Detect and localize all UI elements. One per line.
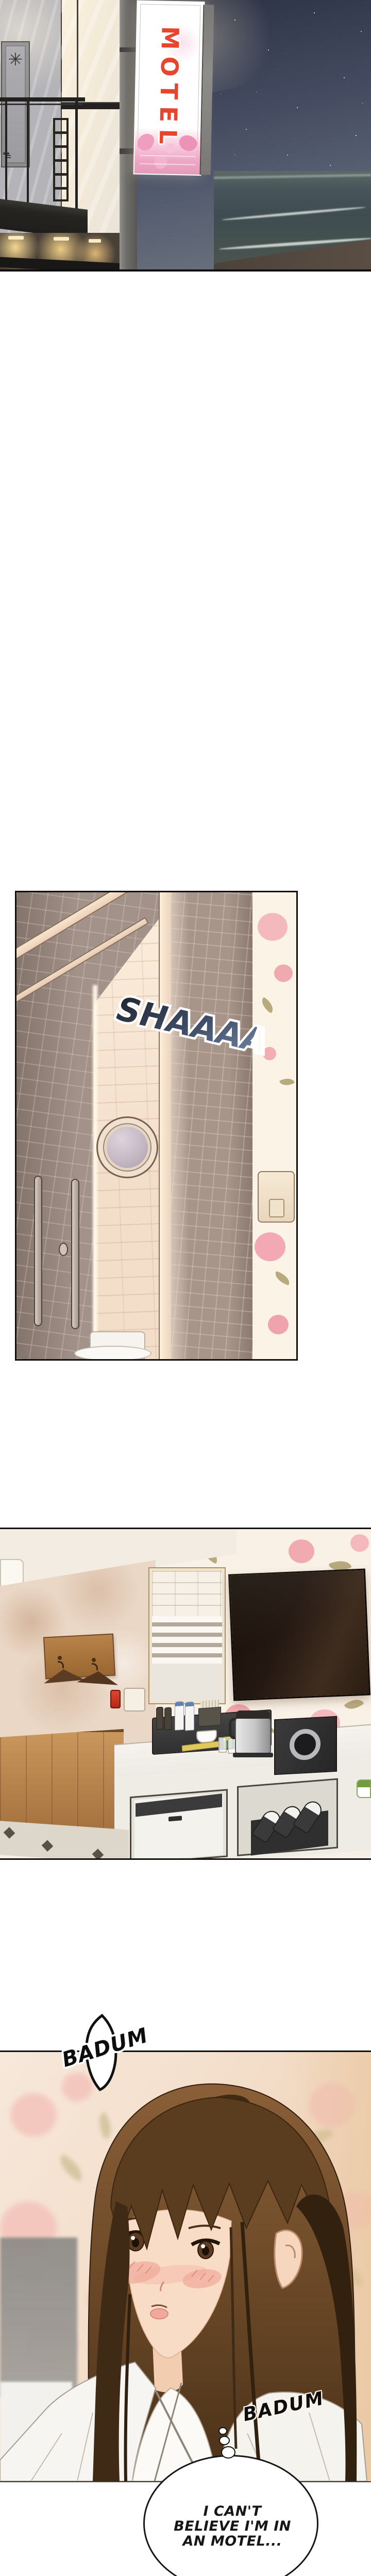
panel-motel-room	[0, 1528, 371, 1860]
speaker-box	[274, 1716, 337, 1775]
pillar-joint	[120, 47, 137, 52]
dark-bottle	[164, 1707, 172, 1730]
thought-line: I CAN'T	[145, 2504, 320, 2519]
wall-switch-plate	[258, 1171, 295, 1223]
toilet-seat	[74, 1346, 151, 1361]
door-frame-stile	[159, 892, 172, 1359]
girl-illustration	[0, 2052, 371, 2481]
thought-trail-circle	[221, 2446, 235, 2459]
wallpaper-peach	[274, 964, 293, 982]
drinking-glass	[218, 1737, 227, 1753]
floral-wallpaper-strip	[252, 892, 296, 1359]
railing-ladder-frame	[53, 118, 69, 201]
door-edge-glow	[93, 985, 97, 1359]
fridge-niche	[130, 1789, 228, 1860]
webtoon-page: ✳ MOTEL	[0, 0, 371, 2576]
thought-bubble-text: I CAN'T BELIEVE I'M IN AN MOTEL...	[145, 2504, 320, 2549]
utensil-box	[198, 1707, 221, 1727]
floor-diamond	[92, 1849, 104, 1860]
wallpaper-peach	[350, 1534, 369, 1552]
emergency-light-switch	[110, 1690, 121, 1708]
robe-left-shoulder	[0, 2362, 156, 2481]
mirror-lower-glass	[152, 1664, 222, 1701]
wall-sticker-header	[358, 1781, 371, 1787]
switch-slot	[269, 1199, 284, 1217]
door-handle-bar	[71, 1179, 79, 1329]
panel-shower-room: SHAAAA SHAAAA	[15, 891, 298, 1361]
window-mullion	[77, 0, 78, 102]
tv-screen-gloss	[228, 1569, 370, 1701]
thought-trail-circle	[219, 2436, 230, 2445]
wallpaper-peach	[268, 1315, 289, 1334]
water-bottle	[185, 1701, 194, 1731]
kettle-lid	[236, 1710, 270, 1719]
wallpaper-peach	[263, 1047, 276, 1060]
bathroom-mirror-window	[149, 1568, 225, 1703]
electric-kettle	[235, 1715, 271, 1755]
water-bottle	[175, 1701, 184, 1731]
wallpaper-peach	[255, 1232, 285, 1261]
downlight	[54, 237, 69, 241]
door-handle-knob	[59, 1243, 68, 1256]
hanger-hook	[58, 1656, 62, 1660]
door-handle-bar	[34, 1176, 42, 1326]
floor-diamond	[42, 1840, 54, 1852]
thought-line: AN MOTEL...	[145, 2534, 320, 2549]
motel-sign: MOTEL	[133, 0, 217, 178]
wallpaper-peach	[258, 913, 288, 941]
slipper-niche	[237, 1778, 338, 1856]
floor-diamond	[4, 1827, 15, 1839]
motel-sign-text: MOTEL	[156, 6, 183, 171]
thought-line: BELIEVE I'M IN	[145, 2519, 320, 2534]
downlight	[89, 239, 101, 243]
vent-starburst-icon: ✳	[3, 47, 28, 72]
dark-bottle	[156, 1707, 163, 1730]
wall-sticker	[357, 1780, 371, 1798]
mirror-privacy-slats	[152, 1616, 222, 1664]
wallpaper-peach	[289, 1539, 314, 1563]
hanger-hook	[92, 1658, 96, 1662]
chopsticks	[200, 1700, 219, 1708]
balcony-rail-inner	[0, 104, 82, 105]
mirror-tile-reflection	[152, 1571, 222, 1616]
speaker-ring	[290, 1728, 321, 1760]
downlight	[8, 236, 24, 240]
wood-panel-wall	[0, 1729, 124, 1832]
balcony-rail	[0, 97, 85, 101]
tile-wall-right	[171, 892, 254, 1359]
thought-trail-circle	[218, 2427, 227, 2435]
porthole-glass	[107, 1127, 148, 1168]
kettle-base	[233, 1753, 273, 1757]
panel-girl-closeup: BADUM	[0, 2050, 371, 2482]
light-switch-plate	[124, 1688, 145, 1711]
panel-motel-exterior: ✳ MOTEL	[0, 0, 371, 272]
